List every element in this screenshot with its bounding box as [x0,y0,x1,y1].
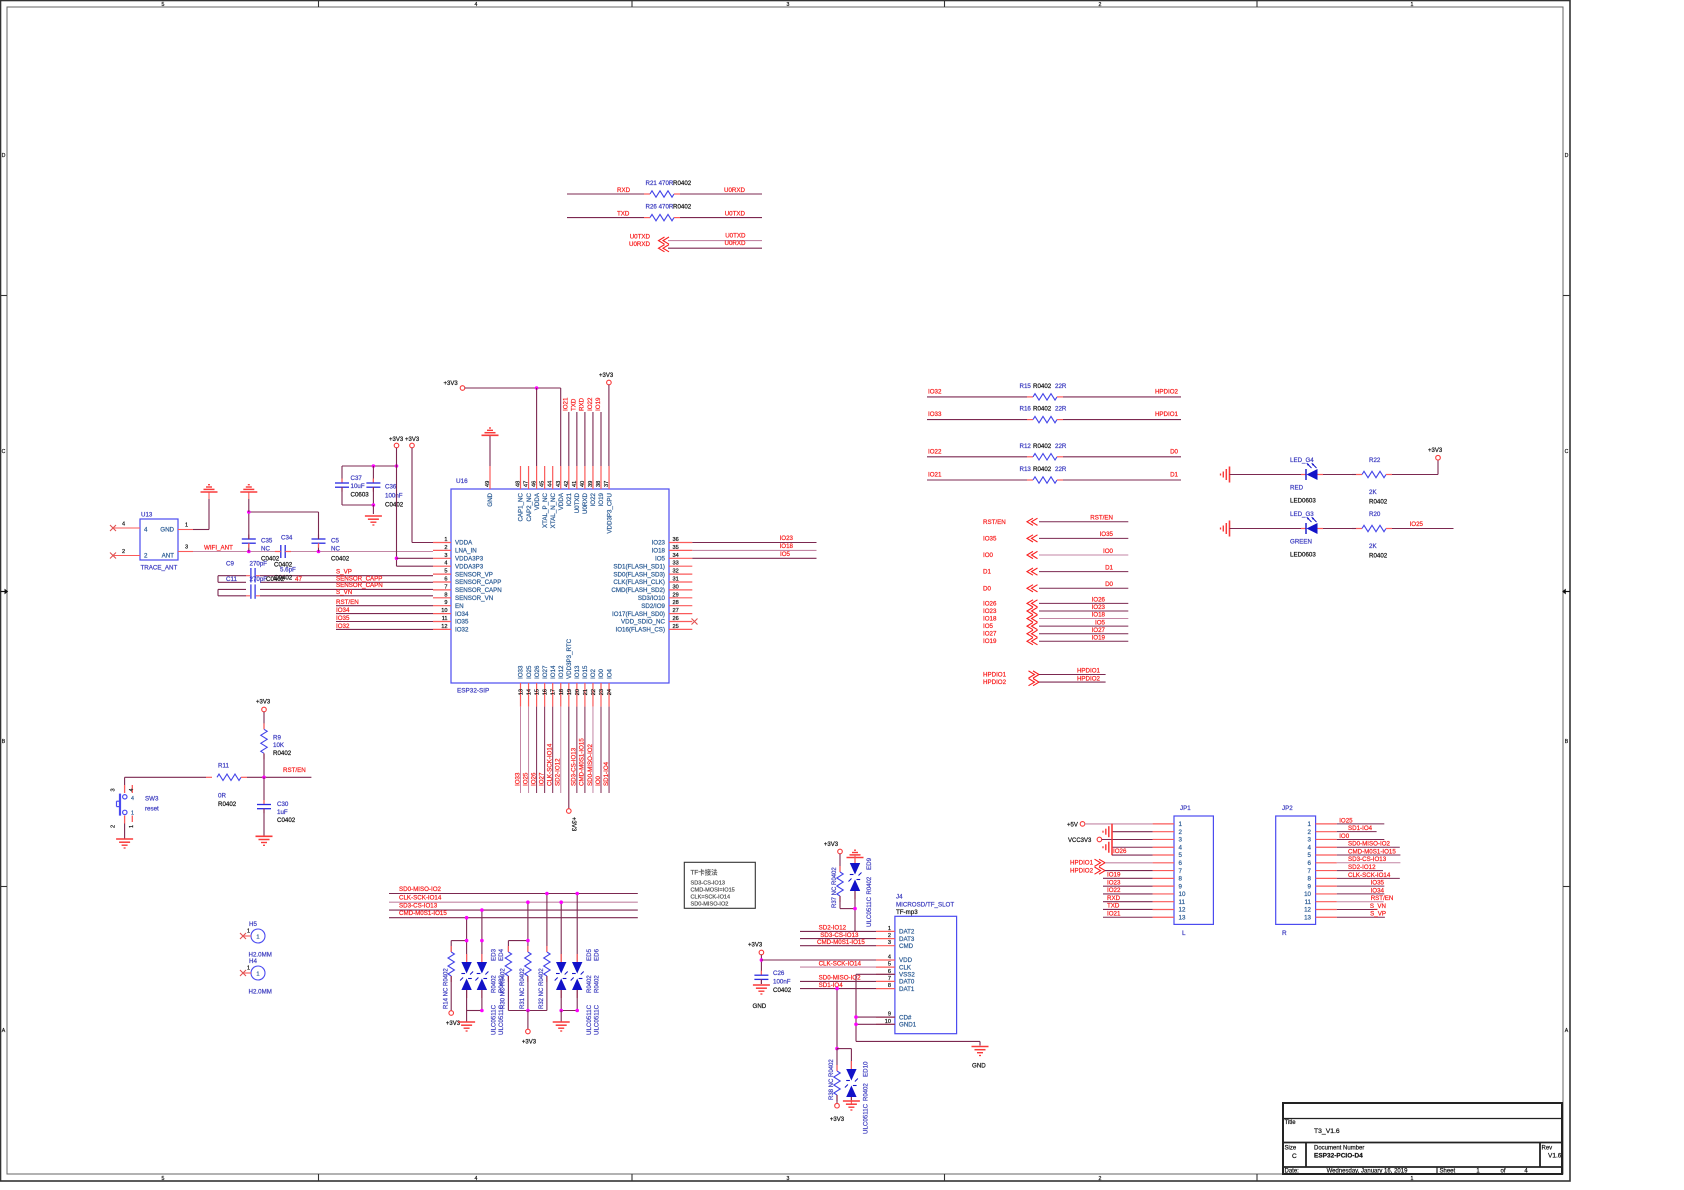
svg-text:11: 11 [1305,899,1312,906]
svg-text:D1: D1 [1105,564,1113,571]
svg-text:C0402: C0402 [773,987,792,994]
svg-text:22: 22 [591,689,597,695]
svg-text:CMD-M0S1-IO15: CMD-M0S1-IO15 [579,738,586,786]
svg-text:HPDIO2: HPDIO2 [1077,675,1101,682]
svg-text:IO21: IO21 [566,492,573,506]
svg-text:10K: 10K [273,742,285,749]
svg-text:SD3-CS-IO13: SD3-CS-IO13 [399,903,438,910]
svg-text:IO22: IO22 [1107,887,1121,894]
svg-text:IO26: IO26 [1113,848,1127,855]
svg-text:Rev: Rev [1542,1146,1553,1152]
svg-text:1: 1 [247,929,250,935]
svg-text:IO34: IO34 [336,607,350,614]
svg-text:2: 2 [144,553,148,560]
svg-text:SD1-IO4: SD1-IO4 [819,982,844,989]
svg-text:10: 10 [1179,891,1186,898]
svg-text:CLK=SCK-IO14: CLK=SCK-IO14 [691,895,731,901]
svg-text:IO25: IO25 [1339,817,1353,824]
svg-text:3: 3 [888,940,891,946]
svg-text:SD2-IO12: SD2-IO12 [555,758,562,786]
svg-text:8: 8 [444,592,447,598]
svg-text:IO5: IO5 [983,623,994,630]
svg-text:R16: R16 [1020,406,1032,413]
svg-text:IO23: IO23 [652,540,666,547]
svg-text:LED0603: LED0603 [1290,498,1316,505]
svg-text:C: C [2,449,6,455]
svg-text:TXD: TXD [1107,903,1120,910]
svg-text:D0: D0 [1105,581,1113,588]
svg-text:36: 36 [673,537,679,543]
svg-text:2K: 2K [1369,543,1377,550]
svg-text:R0402: R0402 [595,975,601,993]
svg-text:IO18: IO18 [983,616,997,623]
svg-text:RST/EN: RST/EN [336,599,359,606]
svg-text:1: 1 [1179,821,1183,828]
svg-text:L: L [1182,930,1186,937]
svg-text:12: 12 [1179,907,1186,914]
svg-text:IO33: IO33 [514,772,521,786]
svg-text:GND1: GND1 [899,1022,917,1029]
svg-text:2: 2 [888,933,891,939]
svg-text:C0402: C0402 [331,556,350,563]
svg-text:4: 4 [129,788,135,791]
svg-text:IO26: IO26 [534,665,541,679]
svg-text:40: 40 [580,481,586,487]
svg-text:IO5: IO5 [655,556,666,563]
svg-text:R21 470R: R21 470R [646,180,674,187]
svg-text:SD3-CS-IO13: SD3-CS-IO13 [1348,856,1387,863]
svg-text:CLK: CLK [899,964,912,971]
svg-text:C9: C9 [226,561,234,568]
svg-text:SENSOR_CAPN: SENSOR_CAPN [455,587,502,594]
svg-text:45: 45 [540,481,546,487]
svg-text:VDDA3P3: VDDA3P3 [455,563,484,570]
svg-text:1: 1 [1411,2,1414,8]
svg-text:9: 9 [1308,883,1312,890]
svg-text:IO34: IO34 [455,611,469,618]
svg-text:CMD-M0S1-IO15: CMD-M0S1-IO15 [399,910,447,917]
svg-text:RST/EN: RST/EN [1090,515,1113,522]
svg-text:VDDA: VDDA [534,492,541,510]
svg-text:9: 9 [1179,883,1183,890]
svg-text:S_VP: S_VP [1370,911,1386,918]
svg-text:IO34: IO34 [1371,887,1385,894]
svg-text:U0TXD: U0TXD [574,492,581,513]
svg-text:VDD3P3_RTC: VDD3P3_RTC [566,638,573,679]
svg-text:7: 7 [444,584,447,590]
svg-text:U0TXD: U0TXD [630,234,651,241]
svg-text:VDD: VDD [899,957,913,964]
svg-text:IO26: IO26 [530,772,537,786]
svg-text:27: 27 [673,608,679,614]
svg-text:MICROSD/TF_SLOT: MICROSD/TF_SLOT [896,902,954,909]
svg-text:R32 NC R0402: R32 NC R0402 [539,968,545,1009]
svg-text:ULC0511C: ULC0511C [594,1004,601,1035]
svg-text:SD3-CS-IO13: SD3-CS-IO13 [820,932,859,939]
svg-text:4: 4 [1179,844,1183,851]
svg-text:5: 5 [888,962,891,968]
svg-text:13: 13 [1179,914,1186,921]
svg-text:RED: RED [1290,485,1304,492]
svg-text:+3V3: +3V3 [444,381,459,387]
svg-text:1: 1 [1411,1176,1414,1182]
svg-text:+3V3: +3V3 [748,943,763,949]
svg-text:1uF: 1uF [277,809,288,816]
svg-text:U0TXD: U0TXD [725,211,746,218]
svg-text:2: 2 [1099,2,1102,8]
svg-text:6: 6 [1179,860,1183,867]
svg-text:22R: 22R [1055,443,1067,450]
svg-text:C0402: C0402 [385,502,404,509]
svg-text:37: 37 [604,481,610,487]
svg-text:4: 4 [122,522,125,528]
svg-text:5: 5 [162,2,165,8]
svg-text:8: 8 [1179,876,1183,883]
svg-text:CMD: CMD [899,943,914,950]
svg-text:U0TXD: U0TXD [725,232,746,239]
svg-text:4: 4 [131,796,134,802]
svg-text:D0: D0 [983,585,991,592]
svg-text:4: 4 [888,955,891,961]
svg-text:SD0-MISO-IO2: SD0-MISO-IO2 [691,902,729,908]
svg-text:Date:: Date: [1285,1169,1300,1175]
svg-text:R30 NC R0402: R30 NC R0402 [501,968,507,1009]
svg-text:C36: C36 [385,484,397,491]
svg-text:TRACE_ANT: TRACE_ANT [141,565,178,572]
svg-text:HPDIO1: HPDIO1 [983,672,1007,679]
svg-text:7: 7 [1308,868,1312,875]
svg-text:TXD: TXD [617,211,630,218]
svg-text:1: 1 [888,926,891,932]
svg-text:1: 1 [247,966,250,972]
svg-text:IO19: IO19 [598,492,605,506]
svg-text:23: 23 [599,689,605,695]
svg-text:3: 3 [787,2,790,8]
svg-text:VDDA: VDDA [455,540,473,547]
svg-text:ESP32-SIP: ESP32-SIP [457,688,489,695]
svg-text:IO35: IO35 [336,615,350,622]
svg-text:2: 2 [122,549,125,555]
svg-text:IO21: IO21 [563,397,570,411]
svg-text:9: 9 [444,600,447,606]
svg-text:EN: EN [455,603,464,610]
svg-text:14: 14 [527,689,533,695]
svg-text:4: 4 [475,1176,478,1182]
svg-text:13: 13 [519,689,525,695]
svg-text:SD1-IO4: SD1-IO4 [1348,825,1373,832]
svg-text:IO15: IO15 [582,665,589,679]
svg-text:R0402: R0402 [673,180,692,187]
svg-text:H2.0MM: H2.0MM [249,989,272,996]
svg-text:31: 31 [673,577,679,583]
svg-text:24: 24 [607,689,613,695]
svg-text:12: 12 [441,624,447,630]
svg-text:R0402: R0402 [673,204,692,211]
svg-text:ED9: ED9 [866,857,873,870]
svg-text:35: 35 [673,545,679,551]
svg-text:SD3/IO10: SD3/IO10 [638,595,666,602]
svg-text:S_VN: S_VN [1370,903,1386,910]
svg-text:VDDA: VDDA [558,492,565,510]
svg-text:4: 4 [444,561,447,567]
svg-text:+3V3: +3V3 [570,817,576,832]
svg-text:15: 15 [535,689,541,695]
svg-text:IO27: IO27 [542,665,549,679]
svg-text:ED3: ED3 [491,948,498,961]
svg-text:38: 38 [596,481,602,487]
svg-text:CAP2_NC: CAP2_NC [526,492,533,521]
svg-text:C26: C26 [773,970,785,977]
svg-text:R26 470R: R26 470R [646,204,674,211]
svg-text:IO23: IO23 [983,608,997,615]
svg-text:T3_V1.6: T3_V1.6 [1314,1128,1340,1135]
svg-text:ULC0511C: ULC0511C [586,1004,593,1035]
svg-text:100nF: 100nF [773,979,791,986]
svg-text:3: 3 [1308,837,1312,844]
svg-text:reset: reset [145,806,159,813]
svg-text:2: 2 [1308,829,1312,836]
svg-text:GND: GND [753,1003,767,1010]
svg-text:IO17(FLASH_SD0): IO17(FLASH_SD0) [612,611,665,618]
svg-text:30: 30 [673,584,679,590]
svg-text:IO19: IO19 [595,397,602,411]
svg-text:22R: 22R [1055,466,1067,473]
svg-text:RST/EN: RST/EN [983,519,1006,526]
svg-text:+3V3: +3V3 [1428,448,1443,454]
svg-text:1: 1 [444,537,447,543]
svg-text:IO14: IO14 [550,665,557,679]
svg-text:34: 34 [673,553,679,559]
svg-text:C11: C11 [226,576,237,583]
svg-text:RST/EN: RST/EN [1371,895,1394,902]
svg-text:CLK-SCK-IO14: CLK-SCK-IO14 [399,895,442,902]
svg-text:4: 4 [1308,844,1312,851]
svg-text:+3V3: +3V3 [522,1040,537,1046]
svg-text:3: 3 [444,553,447,559]
svg-text:C: C [1565,449,1569,455]
svg-text:22R: 22R [1055,406,1067,413]
svg-text:RXD: RXD [579,397,586,411]
svg-text:R0402: R0402 [1033,383,1052,390]
svg-text:1: 1 [129,825,135,828]
svg-text:IO27: IO27 [1092,627,1106,634]
svg-text:R0402: R0402 [492,975,498,993]
svg-text:HPDIO2: HPDIO2 [1070,868,1094,875]
svg-text:R38 NC R0402: R38 NC R0402 [829,1059,835,1100]
svg-text:100nF: 100nF [385,493,403,500]
svg-text:R13: R13 [1020,466,1032,473]
svg-text:SENSOR_VN: SENSOR_VN [455,595,493,602]
svg-text:IO33: IO33 [518,665,525,679]
svg-text:CLK-SCK-IO14: CLK-SCK-IO14 [819,960,862,967]
svg-text:IO32: IO32 [928,388,942,395]
svg-text:H5: H5 [249,921,257,928]
svg-text:IO22: IO22 [590,492,597,506]
svg-text:+3V3: +3V3 [824,842,839,848]
svg-text:CLK-SCK-IO14: CLK-SCK-IO14 [1348,872,1391,879]
svg-text:SD0-MISO-IO2: SD0-MISO-IO2 [819,975,862,982]
svg-text:48: 48 [516,481,522,487]
svg-text:R0402: R0402 [273,750,292,757]
svg-text:NC: NC [261,546,270,553]
svg-text:R0402: R0402 [218,801,237,808]
svg-text:C5: C5 [331,538,339,545]
svg-text:0R: 0R [218,793,226,800]
svg-text:HPDIO2: HPDIO2 [1155,388,1179,395]
svg-text:13: 13 [1304,914,1311,921]
svg-text:IO18: IO18 [780,543,794,550]
svg-text:R0402: R0402 [1369,553,1388,560]
svg-text:33: 33 [673,561,679,567]
svg-text:1: 1 [185,523,188,529]
svg-text:R14 NC R0402: R14 NC R0402 [444,968,450,1009]
svg-text:LED0603: LED0603 [1290,552,1316,559]
svg-text:+3V3: +3V3 [256,700,271,706]
svg-text:R15: R15 [1020,383,1032,390]
svg-text:CAP1_NC: CAP1_NC [518,492,525,521]
svg-text:IO0: IO0 [1103,548,1114,555]
svg-text:CLK(FLASH_CLK): CLK(FLASH_CLK) [613,579,665,586]
svg-text:R37 NC R0402: R37 NC R0402 [832,867,838,908]
svg-text:5: 5 [1179,852,1183,859]
svg-text:C37: C37 [351,475,363,482]
svg-text:6: 6 [1308,860,1312,867]
svg-text:29: 29 [673,592,679,598]
svg-text:SD3-CS-IO13: SD3-CS-IO13 [571,747,578,786]
svg-text:49: 49 [485,481,491,487]
svg-text:LNA_IN: LNA_IN [455,548,477,555]
svg-text:LED_G3: LED_G3 [1290,511,1314,518]
svg-text:SD2-IO12: SD2-IO12 [1348,864,1376,871]
svg-text:R0402: R0402 [1033,443,1052,450]
svg-text:44: 44 [548,481,554,487]
svg-text:IO4: IO4 [606,668,613,679]
svg-text:CMD-MOSI=IO15: CMD-MOSI=IO15 [691,888,735,894]
svg-text:1: 1 [131,811,134,817]
svg-text:A: A [2,1028,6,1034]
svg-text:IO25: IO25 [522,772,529,786]
svg-text:10: 10 [1304,891,1311,898]
svg-text:DAT2: DAT2 [899,929,915,936]
svg-text:2: 2 [444,545,447,551]
svg-text:ULC0511C: ULC0511C [866,896,873,927]
svg-text:+3V3: +3V3 [389,437,404,443]
svg-text:ED5: ED5 [586,948,593,961]
svg-text:R22: R22 [1369,457,1381,464]
svg-text:IO26: IO26 [1092,597,1106,604]
svg-text:10uF: 10uF [351,483,365,490]
svg-text:1: 1 [1308,821,1312,828]
svg-text:R0402: R0402 [1033,466,1052,473]
svg-text:39: 39 [588,481,594,487]
svg-text:IO16(FLASH_CS): IO16(FLASH_CS) [615,627,665,634]
svg-text:ESP32-PCIO-D4: ESP32-PCIO-D4 [1314,1153,1363,1160]
svg-text:C34: C34 [281,535,293,542]
svg-text:+5V: +5V [1067,823,1078,829]
svg-text:RST/EN: RST/EN [283,767,306,774]
svg-text:VDD3P3_CPU: VDD3P3_CPU [606,493,613,534]
svg-text:SD2-IO12: SD2-IO12 [819,924,847,931]
svg-text:11: 11 [1179,899,1186,906]
svg-text:5: 5 [1308,852,1312,859]
svg-text:IO27: IO27 [538,772,545,786]
svg-text:CMD-M0S1-IO15: CMD-M0S1-IO15 [817,939,865,946]
svg-text:Size: Size [1285,1146,1297,1152]
svg-text:R12: R12 [1020,443,1032,450]
svg-text:JP1: JP1 [1180,805,1191,812]
svg-text:+3V3: +3V3 [599,373,614,379]
svg-text:IO35: IO35 [1100,531,1114,538]
svg-text:IO0: IO0 [983,552,994,559]
svg-text:SD3-CS-IO13: SD3-CS-IO13 [691,881,726,887]
svg-text:18: 18 [559,689,565,695]
svg-text:DAT0: DAT0 [899,979,915,986]
svg-text:IO35: IO35 [455,619,469,626]
svg-text:TF-mp3: TF-mp3 [896,909,918,916]
svg-text:IO18: IO18 [1092,612,1106,619]
svg-text:20: 20 [575,689,581,695]
svg-text:VDD_SDIO_NC: VDD_SDIO_NC [621,619,666,626]
svg-text:GND: GND [972,1063,986,1070]
svg-text:IO13: IO13 [574,665,581,679]
svg-text:IO0: IO0 [595,775,602,786]
svg-text:22R: 22R [1055,383,1067,390]
svg-text:SENSOR_CAPP: SENSOR_CAPP [455,579,501,586]
svg-text:C0603: C0603 [351,492,370,499]
svg-text:IO5: IO5 [780,551,791,558]
svg-text:IO0: IO0 [1339,833,1350,840]
svg-text:ULC0511C: ULC0511C [491,1004,498,1035]
svg-text:8: 8 [1308,876,1312,883]
svg-text:Sheet: Sheet [1440,1169,1456,1175]
svg-text:R11: R11 [218,763,229,770]
svg-text:U16: U16 [456,478,468,485]
svg-text:HPDIO1: HPDIO1 [1155,411,1179,418]
svg-text:U0RXD: U0RXD [724,187,746,194]
svg-text:IO32: IO32 [336,623,350,630]
svg-text:28: 28 [673,600,679,606]
svg-text:CMD(FLASH_SD2): CMD(FLASH_SD2) [611,587,665,594]
svg-text:IO0: IO0 [598,668,605,679]
svg-text:ED6: ED6 [594,948,601,961]
svg-text:U0RXD: U0RXD [725,240,747,247]
svg-text:+3V3: +3V3 [405,437,420,443]
svg-text:6: 6 [444,577,447,583]
svg-text:IO22: IO22 [928,448,942,455]
svg-text:26: 26 [673,616,679,622]
svg-text:C0402: C0402 [277,817,296,824]
svg-text:5: 5 [162,1176,165,1182]
svg-text:43: 43 [556,481,562,487]
svg-text:R: R [1282,930,1287,937]
svg-text:VSS2: VSS2 [899,972,915,979]
svg-text:IO19: IO19 [1092,634,1106,641]
svg-text:3: 3 [787,1176,790,1182]
svg-text:SD1(FLASH_SD1): SD1(FLASH_SD1) [613,563,665,570]
svg-text:U13: U13 [141,512,153,519]
svg-text:Document Number: Document Number [1314,1146,1364,1152]
svg-text:D1: D1 [983,569,991,576]
svg-text:VCC3V3: VCC3V3 [1068,838,1092,844]
svg-text:Wednesday, January 16, 2019: Wednesday, January 16, 2019 [1327,1169,1408,1175]
svg-text:D1: D1 [1170,472,1178,479]
svg-text:10: 10 [441,608,447,614]
svg-text:7: 7 [888,976,891,982]
svg-text:R0402: R0402 [1369,499,1388,506]
svg-text:A: A [1565,1028,1569,1034]
svg-text:IO35: IO35 [983,535,997,542]
svg-text:IO18: IO18 [652,548,666,555]
